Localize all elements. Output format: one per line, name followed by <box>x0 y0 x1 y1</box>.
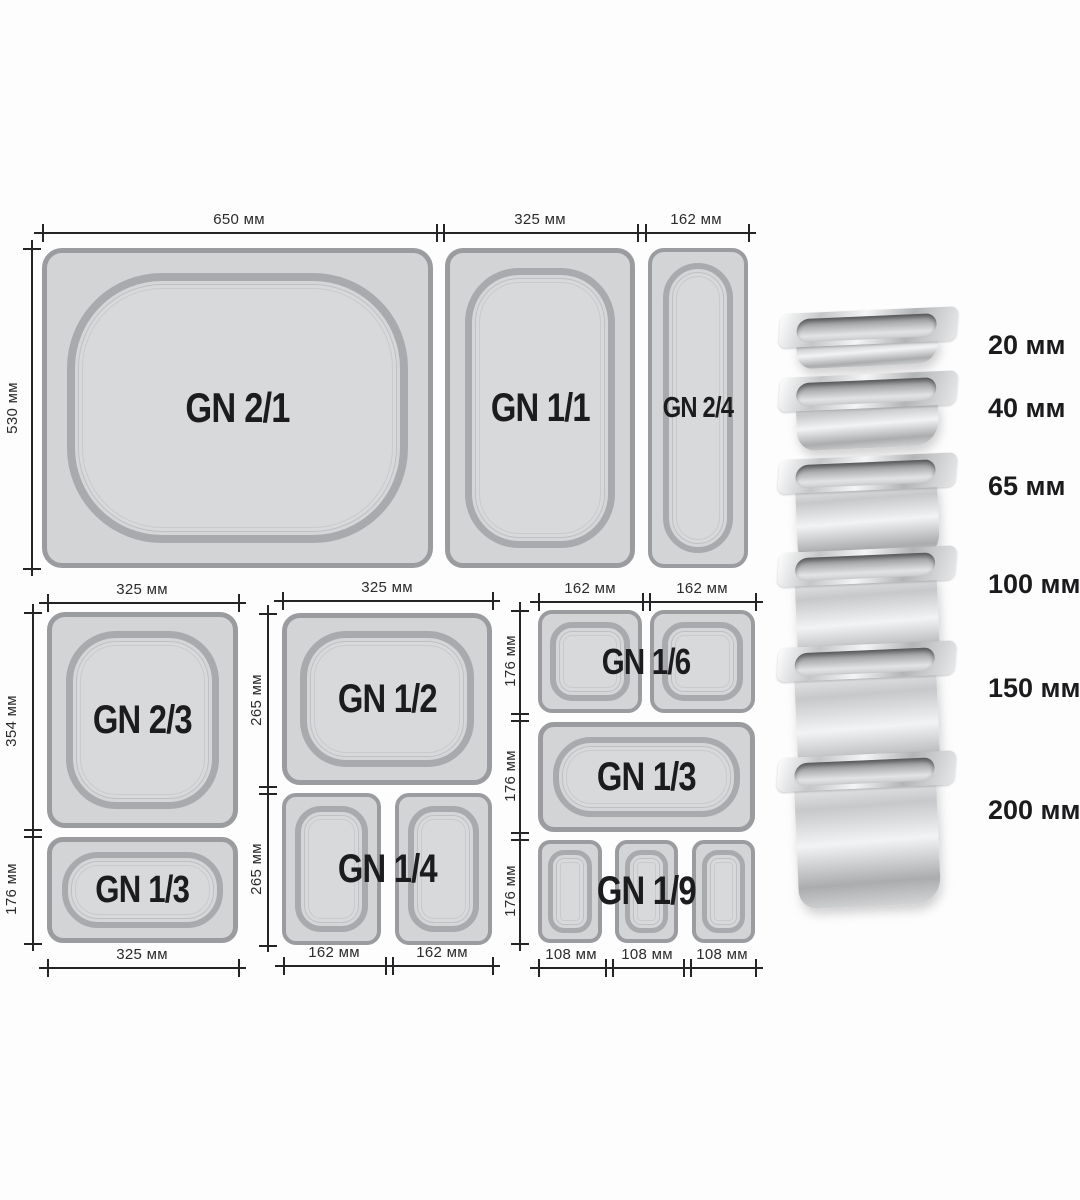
dim-tick <box>683 959 685 977</box>
dim-tick <box>748 224 750 242</box>
dim-tick <box>649 593 651 611</box>
pan-label-text: GN 1/1 <box>491 386 590 431</box>
dim-label-162mm: 162 мм <box>670 211 722 228</box>
pan-label: GN 2/1 <box>47 253 428 563</box>
dim-tick <box>282 592 284 610</box>
dim-tick <box>238 959 240 977</box>
dim-label-325mm: 325 мм <box>116 581 168 598</box>
pan-gn-2-3: GN 2/3 <box>47 612 238 828</box>
dim-tick <box>23 248 41 250</box>
dim-tick <box>690 959 692 977</box>
dim-label-162mm: 162 мм <box>564 580 616 597</box>
pan-label-text: GN 1/2 <box>338 677 437 722</box>
dim-tick <box>511 832 529 834</box>
gastronorm-size-diagram: 650 мм 325 мм 162 мм 530 мм GN 2/1 GN 1/… <box>0 0 1080 1200</box>
dim-tick <box>259 613 277 615</box>
dim-tick <box>385 957 387 975</box>
pan-label-text: GN 1/6 <box>602 641 691 683</box>
dim-tick <box>538 959 540 977</box>
dim-tick <box>443 224 445 242</box>
dim-label-108mm: 108 мм <box>696 946 748 963</box>
dim-label-108mm: 108 мм <box>545 946 597 963</box>
pan-gn-2-4: GN 2/4 <box>648 248 748 568</box>
pan-group-gn-1-4: GN 1/4 <box>282 793 492 945</box>
dim-tick <box>47 959 49 977</box>
dim-label-162mm: 162 мм <box>416 944 468 961</box>
depth-label-65mm: 65 мм <box>988 471 1065 502</box>
dim-label-162mm: 162 мм <box>676 580 728 597</box>
dim-label-265mm: 265 мм <box>248 650 268 750</box>
dim-line-left-height <box>32 604 34 951</box>
pan-label: GN 1/9 <box>538 840 755 943</box>
pan-group-gn-1-9: GN 1/9 <box>538 840 755 943</box>
dim-label-265mm: 265 мм <box>248 819 268 919</box>
dim-tick <box>436 224 438 242</box>
dim-line-right-bottom-width: 108 мм 108 мм 108 мм <box>530 967 763 969</box>
dim-tick <box>511 720 529 722</box>
pan-photo-20mm <box>779 302 968 372</box>
dim-tick <box>755 593 757 611</box>
pan-gn-1-3-right: GN 1/3 <box>538 722 755 832</box>
pan-label: GN 1/3 <box>52 842 233 938</box>
pan-gn-2-1: GN 2/1 <box>42 248 433 568</box>
depth-label-200mm: 200 мм <box>988 795 1080 826</box>
dim-tick <box>259 945 277 947</box>
depth-label-100mm: 100 мм <box>988 569 1080 600</box>
dim-tick <box>47 594 49 612</box>
pan-label-text: GN 2/3 <box>93 698 192 743</box>
pan-gn-1-3-left: GN 1/3 <box>47 837 238 943</box>
pan-label: GN 1/3 <box>543 727 750 827</box>
dim-label-176mm: 176 мм <box>3 839 23 939</box>
dim-tick <box>259 793 277 795</box>
depth-label-40mm: 40 мм <box>988 393 1065 424</box>
pan-label: GN 1/4 <box>282 793 492 945</box>
pan-gn-1-2: GN 1/2 <box>282 613 492 785</box>
pan-label-text: GN 1/3 <box>96 869 190 912</box>
pan-label-text: GN 1/9 <box>597 869 696 914</box>
dim-tick <box>24 836 42 838</box>
dim-tick <box>492 592 494 610</box>
pan-label-text: GN 2/1 <box>185 384 289 432</box>
pan-photo-200mm <box>777 746 970 912</box>
dim-label-176mm: 176 мм <box>502 611 522 711</box>
dim-label-650mm: 650 мм <box>213 211 265 228</box>
dim-label-176mm: 176 мм <box>502 841 522 941</box>
pan-photo-body <box>794 779 941 909</box>
dim-line-left-bottom-width: 325 мм <box>39 967 246 969</box>
pan-label: GN 1/1 <box>450 253 630 563</box>
dim-label-354mm: 354 мм <box>3 671 23 771</box>
dim-tick <box>42 224 44 242</box>
dim-tick <box>612 959 614 977</box>
dim-tick <box>645 224 647 242</box>
pan-label-text: GN 1/4 <box>338 847 437 892</box>
dim-tick <box>755 959 757 977</box>
dim-line-middle-bottom-width: 162 мм 162 мм <box>275 965 500 967</box>
depth-label-20mm: 20 мм <box>988 330 1065 361</box>
dim-label-325mm: 325 мм <box>116 946 168 963</box>
dim-label-176mm: 176 мм <box>502 726 522 826</box>
dim-tick <box>511 943 529 945</box>
dim-tick <box>642 593 644 611</box>
dim-tick <box>24 829 42 831</box>
dim-tick <box>511 713 529 715</box>
dim-tick <box>538 593 540 611</box>
dim-tick <box>392 957 394 975</box>
dim-label-108mm: 108 мм <box>621 946 673 963</box>
dim-label-325mm: 325 мм <box>361 579 413 596</box>
dim-tick <box>492 957 494 975</box>
pan-label-text: GN 1/3 <box>597 755 696 800</box>
dim-tick <box>23 568 41 570</box>
depth-label-150mm: 150 мм <box>988 673 1080 704</box>
pan-photo-40mm <box>778 366 967 454</box>
dim-line-left-top-width: 325 мм <box>39 602 246 604</box>
dim-label-162mm: 162 мм <box>308 944 360 961</box>
dim-tick <box>283 957 285 975</box>
dim-tick <box>259 786 277 788</box>
pan-label: GN 1/2 <box>287 618 487 780</box>
dim-label-325mm: 325 мм <box>514 211 566 228</box>
dim-line-top-width: 650 мм 325 мм 162 мм <box>34 232 756 234</box>
pan-label: GN 2/3 <box>52 617 233 823</box>
dim-tick <box>605 959 607 977</box>
dim-line-right-top-width: 162 мм 162 мм <box>530 601 763 603</box>
pan-gn-1-1: GN 1/1 <box>445 248 635 568</box>
dim-label-530mm: 530 мм <box>4 358 24 458</box>
dim-tick <box>238 594 240 612</box>
pan-label: GN 1/6 <box>538 610 755 713</box>
dim-line-middle-top-width: 325 мм <box>274 600 500 602</box>
dim-tick <box>24 943 42 945</box>
dim-line-top-height <box>31 240 33 576</box>
pan-group-gn-1-6: GN 1/6 <box>538 610 755 713</box>
dim-tick <box>637 224 639 242</box>
pan-label: GN 2/4 <box>652 252 744 564</box>
pan-label-text: GN 2/4 <box>663 392 733 425</box>
dim-tick <box>24 612 42 614</box>
